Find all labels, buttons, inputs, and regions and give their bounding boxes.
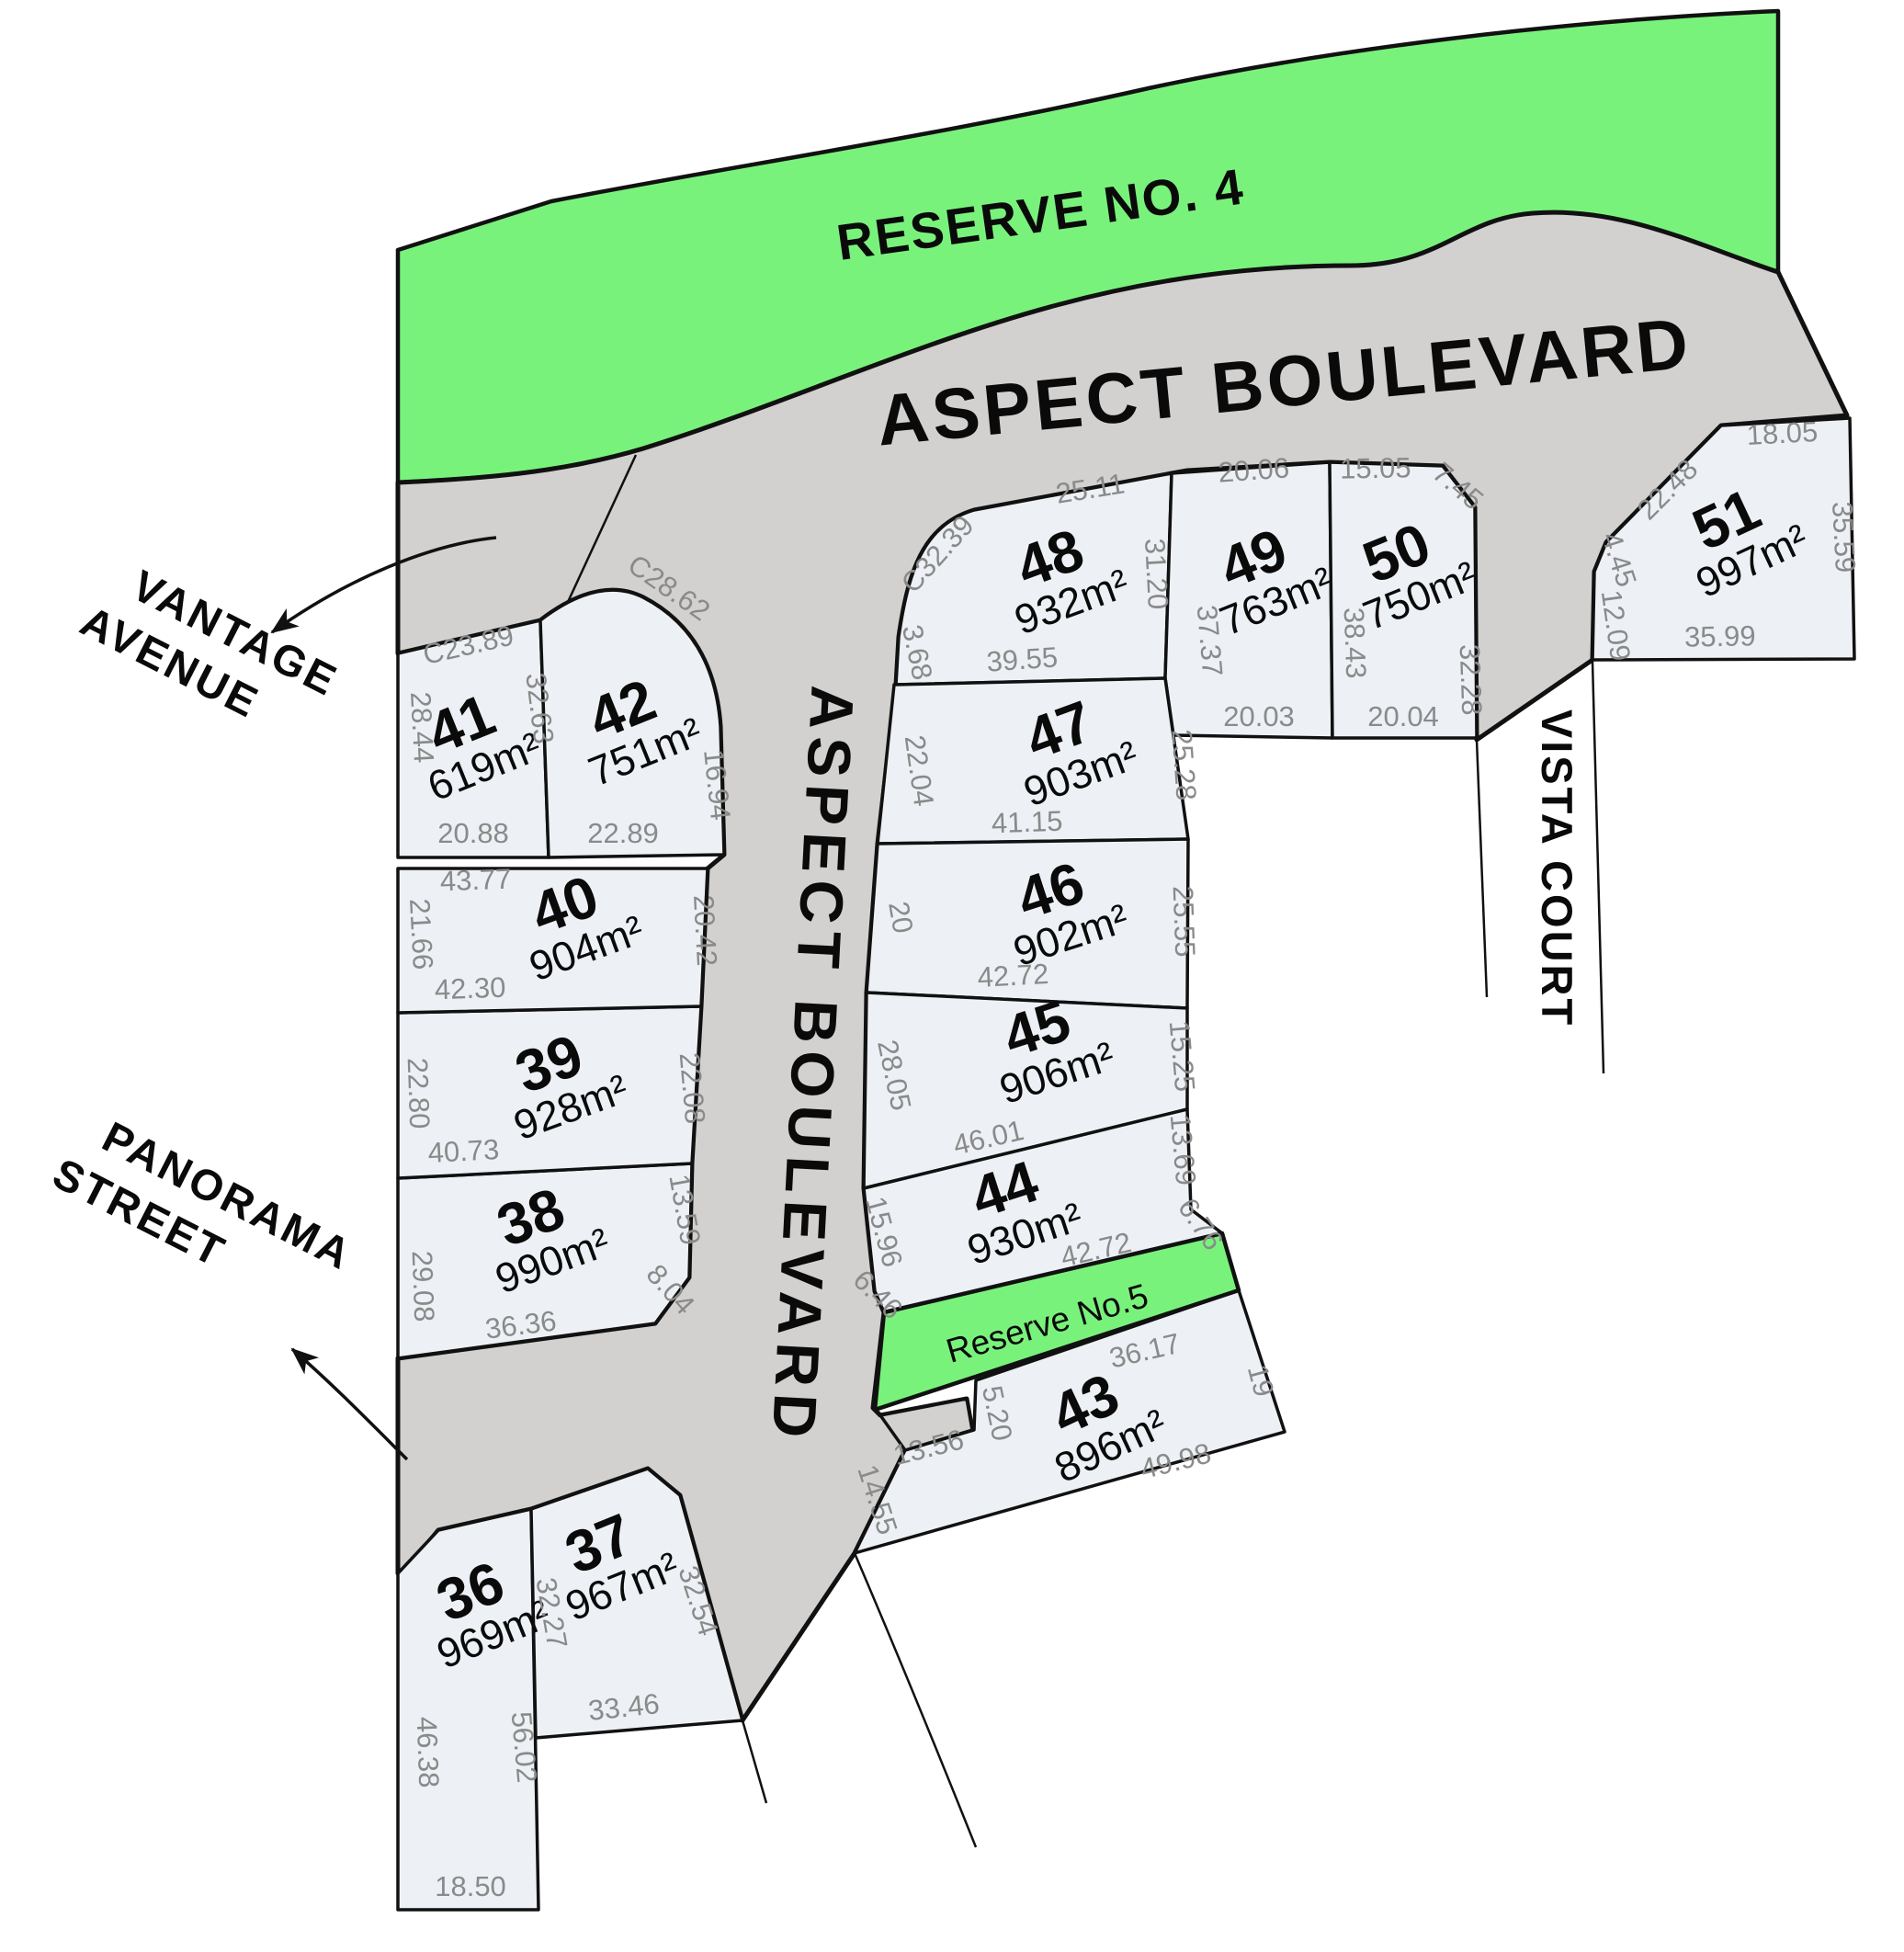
lot-42-dim: 22.89	[587, 817, 659, 849]
lot-44-dim: 13.69	[1164, 1113, 1203, 1186]
road-extension-line	[742, 1720, 766, 1803]
vista-court-west-edge	[1477, 740, 1487, 997]
lot-36-dim: 18.50	[435, 1870, 506, 1902]
lot-48-dim: 39.55	[985, 641, 1059, 677]
lot-50-dim: 38.43	[1338, 607, 1373, 679]
lot-36-dim: 56.02	[505, 1710, 544, 1784]
vantage-avenue-label: VANTAGE AVENUE	[74, 547, 346, 755]
lot-41-dim: 20.88	[437, 817, 509, 849]
boundary-extension-curve	[855, 1553, 976, 1847]
subdivision-plan-page: RESERVE NO. 4 ASPECT BOULEVARD ASPECT BO…	[0, 0, 1904, 1952]
lot-46-dim: 25.55	[1167, 885, 1202, 958]
vista-court-east-edge	[1592, 662, 1604, 1073]
panorama-street-arrow	[292, 1349, 407, 1459]
lot-51-dim: 35.59	[1826, 501, 1862, 573]
panorama-street-label: PANORAMA STREET	[45, 1099, 360, 1328]
lot-38-dim: 29.08	[406, 1250, 441, 1322]
lot-50-dim: 32.28	[1454, 643, 1489, 716]
lot-46-dim: 20	[882, 899, 919, 936]
lot-40-dim: 20.42	[687, 894, 723, 967]
lot-48-dim: 31.20	[1139, 538, 1174, 610]
lot-49-dim: 20.06	[1217, 451, 1290, 488]
lot-39-dim: 40.73	[427, 1133, 500, 1169]
lot-36-dim: 46.38	[411, 1716, 446, 1788]
lot-40-dim: 21.66	[403, 898, 439, 970]
subdivision-plan-map: RESERVE NO. 4 ASPECT BOULEVARD ASPECT BO…	[0, 0, 1904, 1952]
lot-41-dim: 28.44	[404, 691, 440, 764]
lot-51-dim: 35.99	[1684, 619, 1756, 653]
lot-46-dim: 42.72	[977, 958, 1049, 993]
lot-47-dim: 25.28	[1165, 728, 1202, 801]
vista-court-label: VISTA COURT	[1533, 709, 1581, 1027]
lot-40-dim: 43.77	[439, 863, 512, 898]
lot-49-dim: 37.37	[1191, 604, 1230, 677]
lot-40-dim: 42.30	[434, 971, 506, 1006]
lot-39-dim: 22.08	[674, 1051, 712, 1125]
lot-45-dim: 15.25	[1163, 1019, 1202, 1093]
lot-47-dim: 41.15	[991, 805, 1063, 840]
lot-39-dim: 22.80	[402, 1057, 436, 1129]
lot-50-dim: 15.05	[1340, 451, 1411, 484]
lot-50-dim: 20.04	[1367, 700, 1439, 732]
lot-49-dim: 20.03	[1223, 700, 1295, 732]
lot-51-dim: 18.05	[1746, 415, 1819, 451]
